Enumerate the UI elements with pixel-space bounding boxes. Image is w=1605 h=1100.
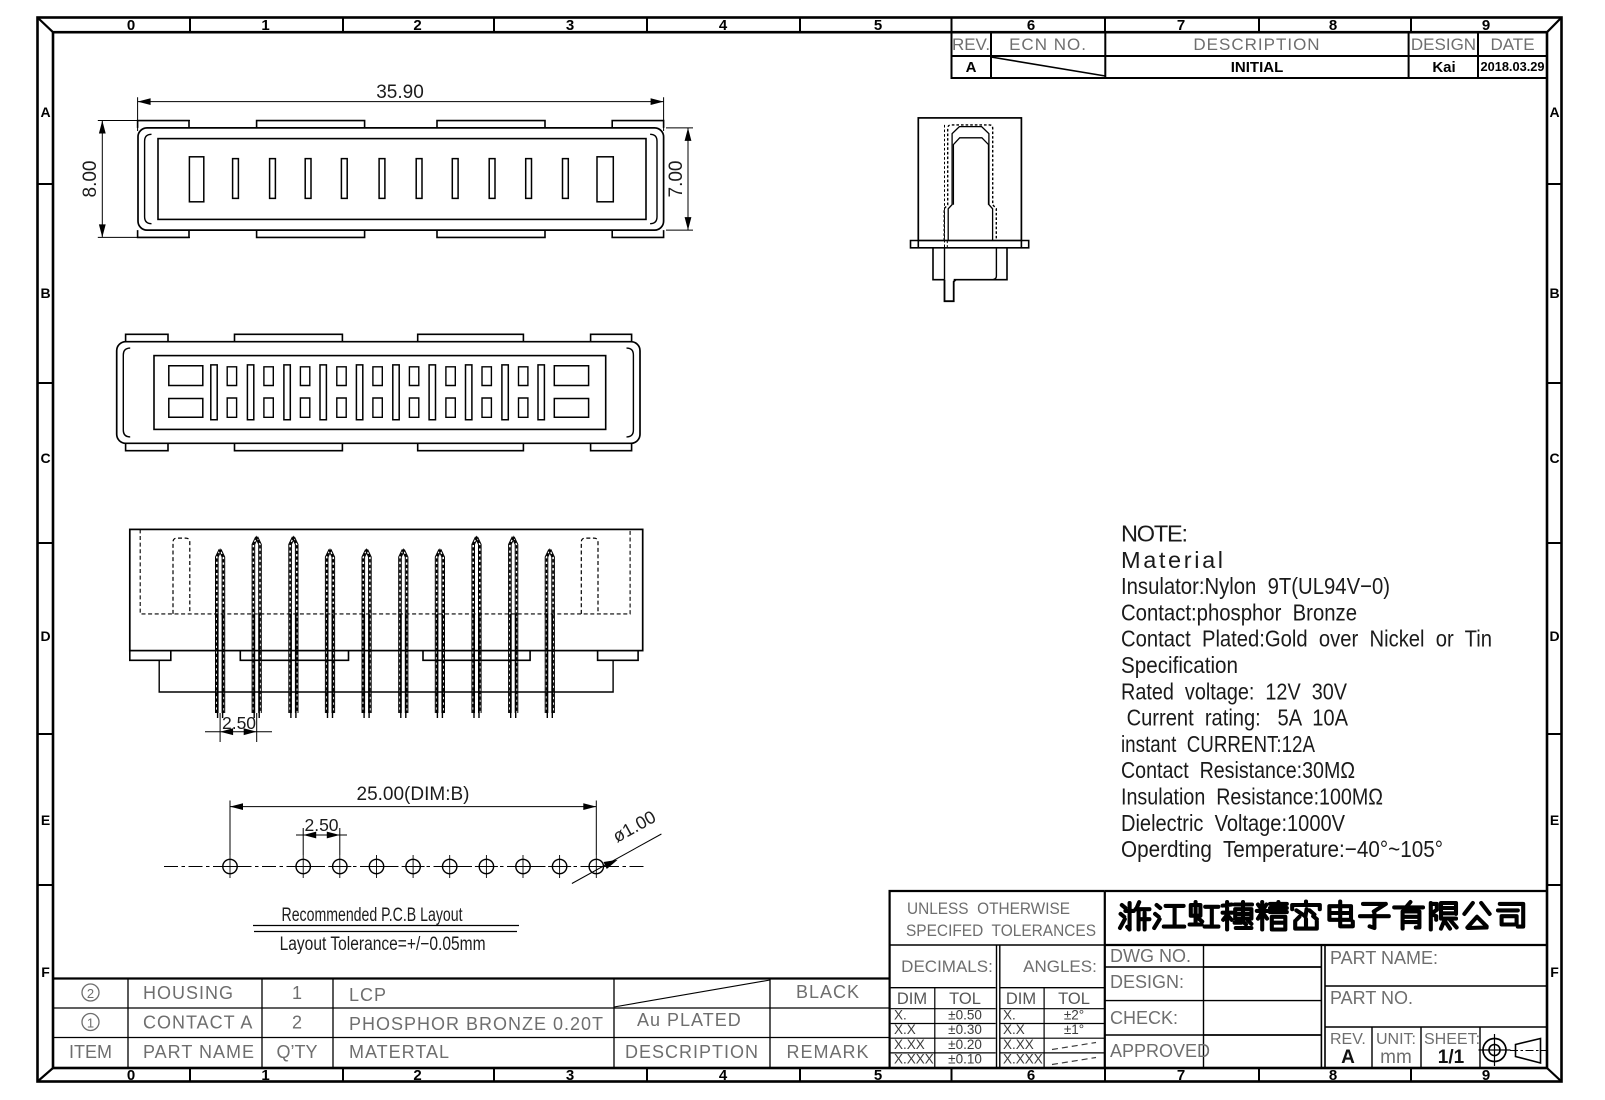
svg-text:1: 1 — [261, 1067, 269, 1084]
svg-text:PART NAME:: PART NAME: — [1330, 948, 1438, 968]
svg-text:6: 6 — [1027, 1067, 1035, 1084]
svg-text:X.: X. — [894, 1008, 907, 1023]
svg-text:APPROVED: APPROVED — [1110, 1041, 1210, 1061]
svg-text:E: E — [1550, 812, 1559, 828]
svg-text:2018.03.29: 2018.03.29 — [1480, 59, 1544, 74]
svg-text:X.XX: X.XX — [894, 1037, 925, 1052]
svg-text:A: A — [40, 104, 50, 120]
svg-text:C: C — [1549, 450, 1559, 466]
svg-text:X.: X. — [1003, 1008, 1016, 1023]
svg-text:SPECIFED TOLERANCES: SPECIFED TOLERANCES — [906, 922, 1096, 940]
svg-text:Insulator:Nylon 9T(UL94V−0): Insulator:Nylon 9T(UL94V−0) — [1121, 573, 1390, 599]
svg-text:X.XXX: X.XXX — [1003, 1052, 1043, 1067]
svg-text:D: D — [40, 628, 50, 644]
svg-text:C: C — [40, 450, 50, 466]
svg-text:25.00(DIM:B): 25.00(DIM:B) — [357, 784, 470, 805]
svg-text:A: A — [966, 59, 977, 76]
svg-text:5: 5 — [874, 17, 882, 34]
svg-text:2: 2 — [292, 1013, 302, 1033]
svg-text:9: 9 — [1482, 17, 1490, 34]
svg-text:E: E — [41, 812, 50, 828]
svg-text:LCP: LCP — [349, 985, 387, 1005]
svg-text:±1°: ±1° — [1064, 1022, 1084, 1037]
svg-text:DESCRIPTION: DESCRIPTION — [1193, 35, 1320, 54]
svg-text:8.00: 8.00 — [80, 161, 101, 198]
svg-text:1: 1 — [292, 983, 302, 1003]
svg-text:DESIGN: DESIGN — [1411, 35, 1476, 54]
svg-text:ECN NO.: ECN NO. — [1009, 35, 1087, 54]
svg-text:2: 2 — [87, 986, 94, 1001]
svg-text:Dielectric Voltage:1000V: Dielectric Voltage:1000V — [1121, 810, 1345, 836]
svg-text:B: B — [40, 285, 50, 301]
svg-text:Contact:phosphor Bronze: Contact:phosphor Bronze — [1121, 599, 1357, 625]
svg-text:ITEM: ITEM — [69, 1042, 112, 1062]
svg-text:2: 2 — [413, 17, 421, 34]
svg-text:2: 2 — [413, 1067, 421, 1084]
svg-text:X.X: X.X — [1003, 1022, 1025, 1037]
svg-text:X.XXX: X.XXX — [894, 1052, 934, 1067]
svg-text:NOTE:: NOTE: — [1121, 521, 1188, 547]
svg-text:1: 1 — [261, 17, 269, 34]
svg-text:1/1: 1/1 — [1438, 1047, 1465, 1068]
svg-text:Specification: Specification — [1121, 652, 1238, 678]
svg-text:BLACK: BLACK — [796, 982, 860, 1002]
svg-text:REV.: REV. — [1330, 1031, 1366, 1048]
svg-text:F: F — [41, 964, 50, 980]
svg-text:PART NAME: PART NAME — [143, 1042, 255, 1062]
svg-text:Insulation Resistance:100MΩ: Insulation Resistance:100MΩ — [1121, 784, 1383, 810]
svg-text:CHECK:: CHECK: — [1110, 1008, 1178, 1028]
svg-text:PART NO.: PART NO. — [1330, 988, 1413, 1008]
svg-text:TOL: TOL — [1058, 990, 1090, 1008]
svg-text:DIM: DIM — [1006, 990, 1036, 1008]
svg-text:Current rating: 5A 10A: Current rating: 5A 10A — [1121, 705, 1348, 731]
svg-text:DESIGN:: DESIGN: — [1110, 972, 1184, 992]
svg-text:Q’TY: Q’TY — [276, 1042, 317, 1062]
svg-text:X.X: X.X — [894, 1022, 916, 1037]
svg-text:2.50: 2.50 — [304, 815, 338, 835]
svg-text:TOL: TOL — [949, 990, 981, 1008]
svg-text:35.90: 35.90 — [376, 82, 424, 103]
svg-text:0: 0 — [127, 17, 135, 34]
svg-text:mm: mm — [1380, 1047, 1412, 1068]
svg-text:±0.10: ±0.10 — [948, 1052, 982, 1067]
svg-text:DATE: DATE — [1490, 35, 1534, 54]
svg-text:A: A — [1549, 104, 1559, 120]
svg-text:9: 9 — [1482, 1067, 1490, 1084]
svg-text:8: 8 — [1329, 1067, 1337, 1084]
svg-text:±0.50: ±0.50 — [948, 1008, 982, 1023]
svg-text:MATERTAL: MATERTAL — [349, 1042, 450, 1062]
svg-text:7.00: 7.00 — [666, 161, 687, 198]
svg-text:F: F — [1550, 964, 1559, 980]
svg-text:ANGLES:: ANGLES: — [1023, 957, 1097, 976]
svg-text:8: 8 — [1329, 17, 1337, 34]
svg-text:5: 5 — [874, 1067, 882, 1084]
svg-text:B: B — [1549, 285, 1559, 301]
svg-text:UNIT:: UNIT: — [1376, 1031, 1416, 1048]
svg-text:SHEET:: SHEET: — [1424, 1031, 1480, 1048]
svg-text:Material: Material — [1121, 547, 1223, 573]
svg-text:Operdting Temperature:−40°~10: Operdting Temperature:−40°~105° — [1121, 836, 1443, 862]
svg-text:A: A — [1341, 1047, 1355, 1068]
svg-text:2.50: 2.50 — [222, 713, 256, 733]
svg-text:1: 1 — [87, 1016, 94, 1031]
svg-text:4: 4 — [719, 1067, 728, 1084]
svg-text:INITIAL: INITIAL — [1231, 59, 1284, 76]
svg-text:Au PLATED: Au PLATED — [637, 1010, 742, 1030]
svg-text:Layout Tolerance=+/−0.05mm: Layout Tolerance=+/−0.05mm — [280, 934, 486, 955]
svg-text:DIM: DIM — [897, 990, 927, 1008]
svg-text:7: 7 — [1177, 1067, 1185, 1084]
svg-text:±0.30: ±0.30 — [948, 1022, 982, 1037]
svg-text:6: 6 — [1027, 17, 1035, 34]
svg-text:REMARK: REMARK — [786, 1042, 869, 1062]
svg-text:UNLESS OTHERWISE: UNLESS OTHERWISE — [907, 900, 1070, 918]
svg-text:Contact Resistance:30MΩ: Contact Resistance:30MΩ — [1121, 757, 1355, 783]
svg-text:4: 4 — [719, 17, 728, 34]
svg-text:DWG NO.: DWG NO. — [1110, 946, 1191, 966]
svg-text:X.XX: X.XX — [1003, 1037, 1034, 1052]
svg-text:3: 3 — [566, 1067, 574, 1084]
svg-text:3: 3 — [566, 17, 574, 34]
svg-text:PHOSPHOR BRONZE 0.20T: PHOSPHOR BRONZE 0.20T — [349, 1014, 604, 1034]
svg-text:Contact Plated:Gold over Ni: Contact Plated:Gold over Nickel or Tin — [1121, 626, 1492, 652]
svg-text:Rated voltage: 12V 30V: Rated voltage: 12V 30V — [1121, 678, 1347, 704]
svg-text:D: D — [1549, 628, 1559, 644]
svg-text:REV.: REV. — [952, 35, 990, 54]
svg-text:DECIMALS:: DECIMALS: — [901, 957, 993, 976]
svg-text:CONTACT A: CONTACT A — [143, 1013, 253, 1033]
svg-text:HOUSING: HOUSING — [143, 983, 234, 1003]
svg-text:±0.20: ±0.20 — [948, 1037, 982, 1052]
svg-text:Kai: Kai — [1432, 59, 1455, 76]
svg-text:±2°: ±2° — [1064, 1008, 1084, 1023]
svg-text:0: 0 — [127, 1067, 135, 1084]
svg-text:instant CURRENT:12A: instant CURRENT:12A — [1121, 731, 1315, 757]
svg-text:Recommended P.C.B Layout: Recommended P.C.B Layout — [282, 905, 464, 926]
svg-text:7: 7 — [1177, 17, 1185, 34]
svg-text:DESCRIPTION: DESCRIPTION — [625, 1042, 759, 1062]
